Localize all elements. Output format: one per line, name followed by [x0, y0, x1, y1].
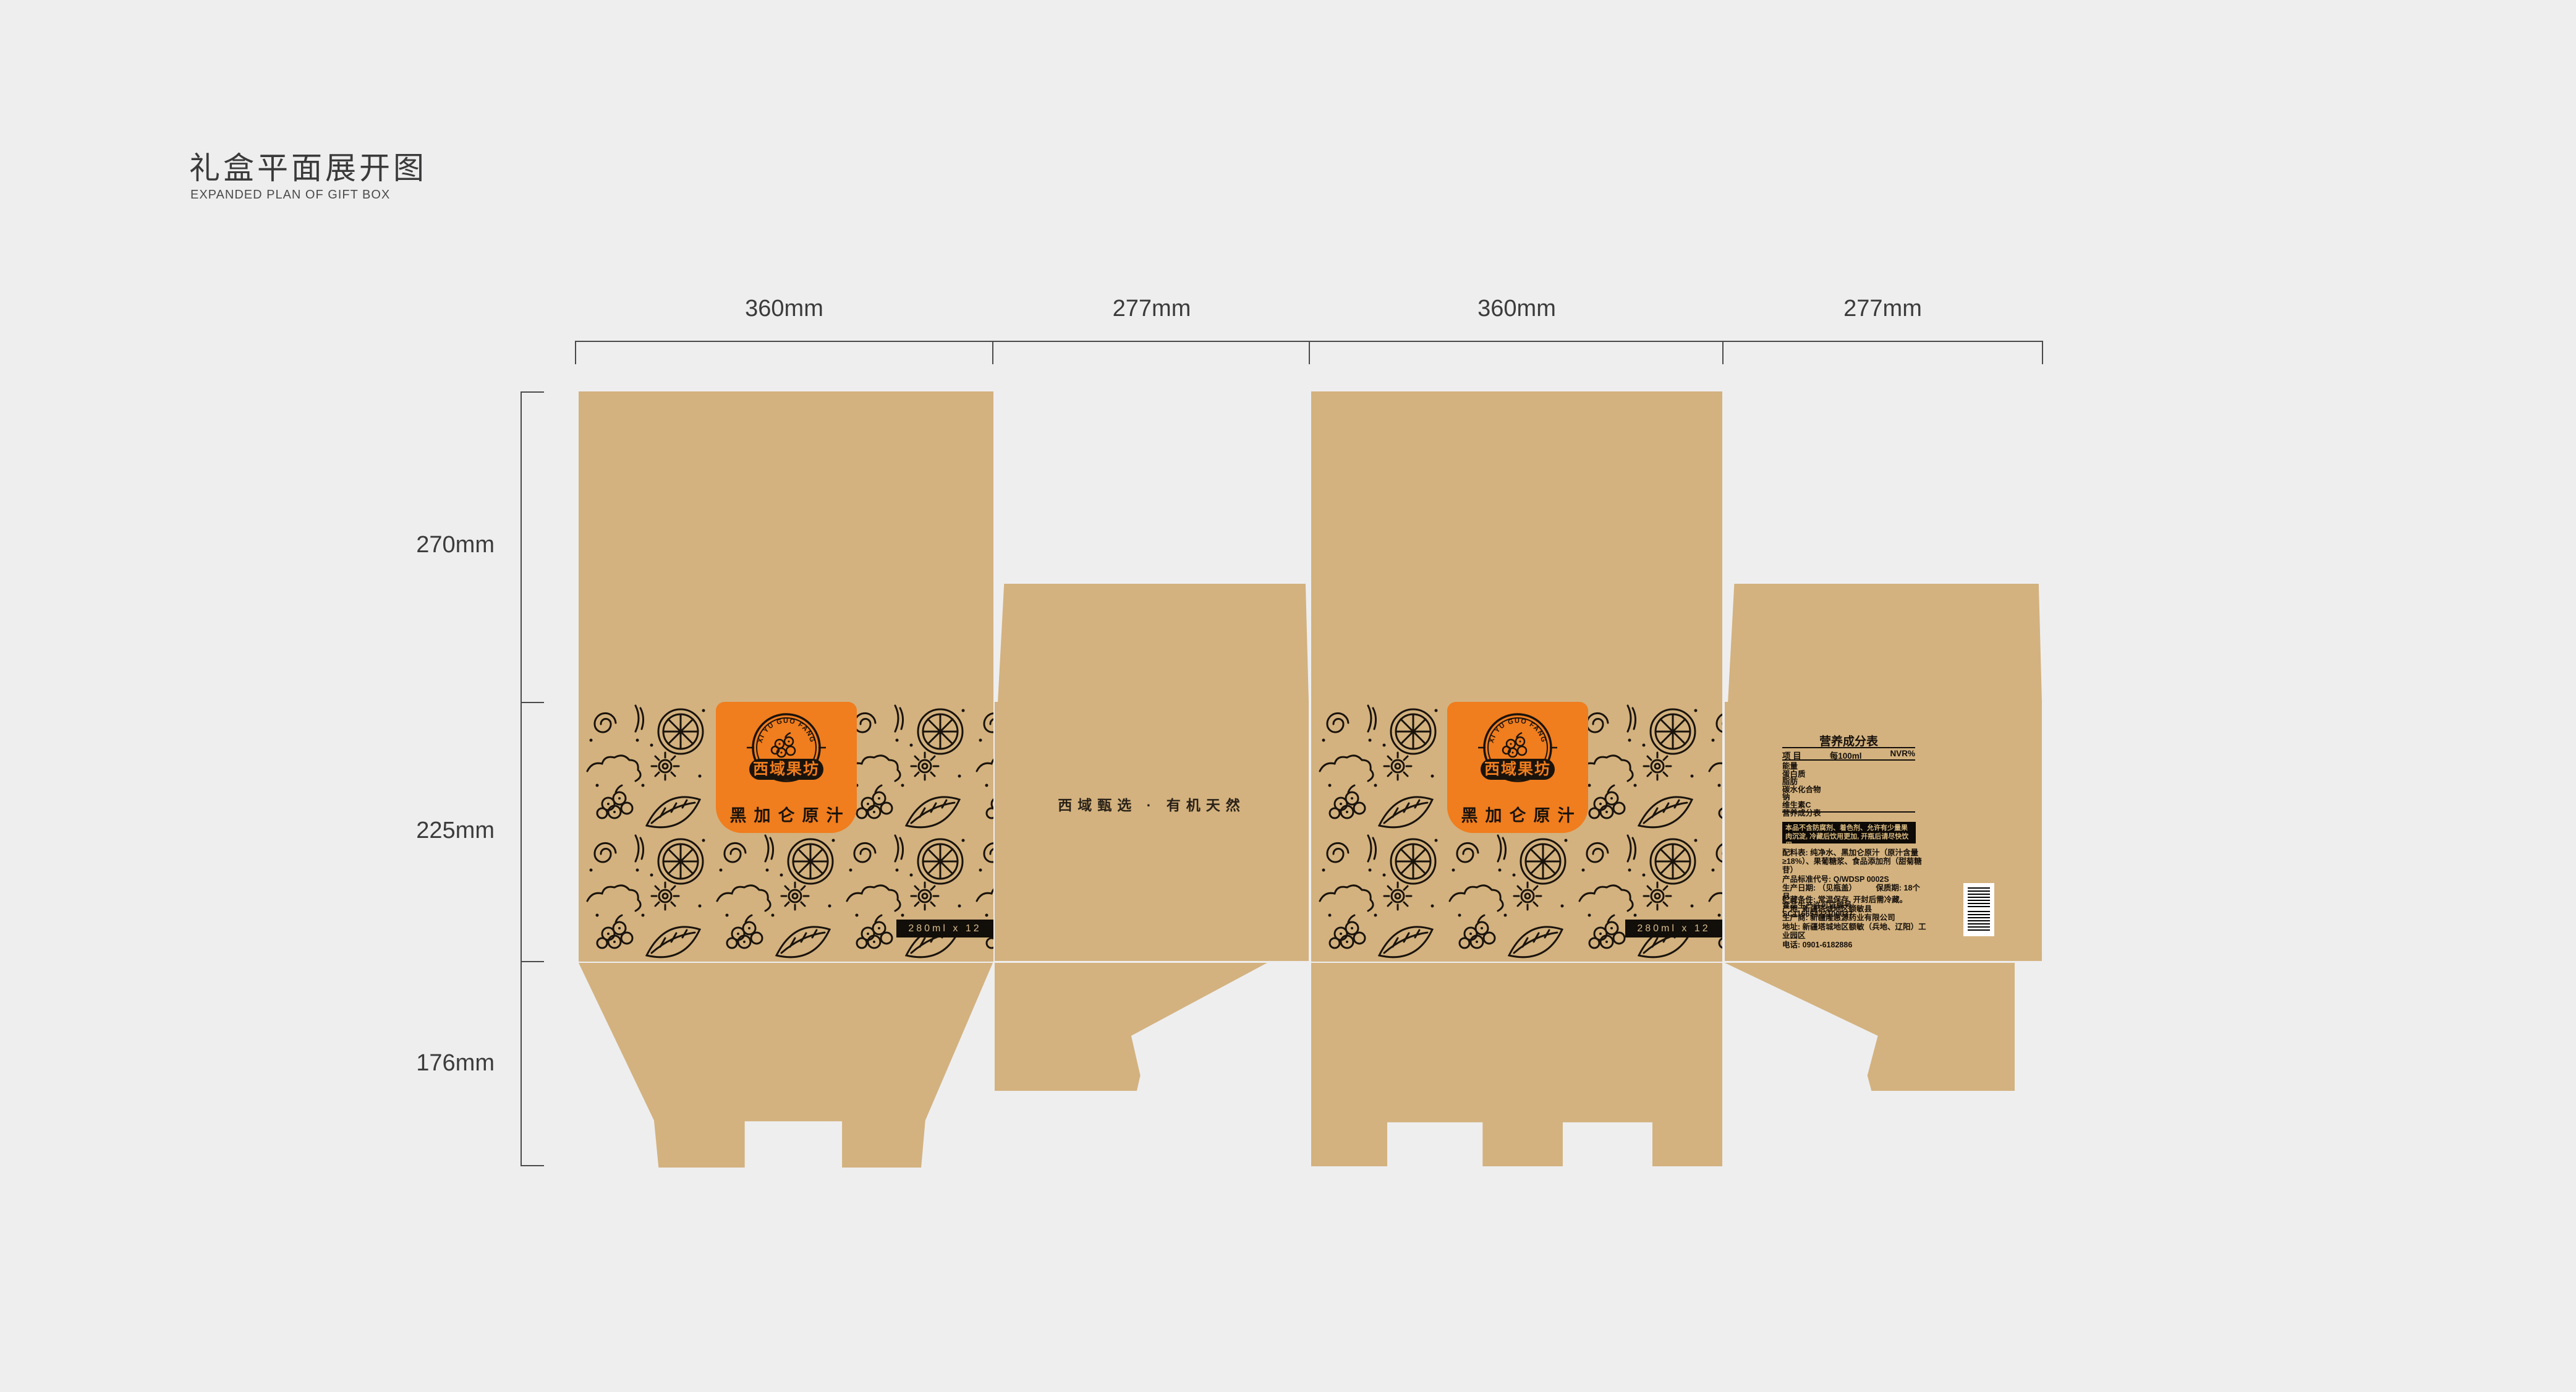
nutrition-rule — [1782, 811, 1915, 813]
detail-line: 配料表: 纯净水、黑加仑原汁（原汁含量≥18%）、果葡糖浆、食品添加剂（甜菊糖苷… — [1782, 848, 1926, 875]
detail-line: 地址: 新疆塔城地区额敏（兵地、辽阳）工业园区 — [1782, 923, 1932, 941]
nutrition-row: 脂肪 — [1782, 778, 1915, 786]
dimension-label-top-4: 277mm — [1724, 296, 2042, 322]
panel2-bottom-flap — [995, 963, 1288, 1091]
left-dimension-tick — [521, 1165, 544, 1166]
brand-logo: XI YU GUO FANG 西域果坊 — [716, 703, 857, 801]
brand-logo: XI YU GUO FANG 西域果坊 — [1447, 703, 1588, 801]
berry-illustration — [772, 733, 795, 757]
panel1-top-face — [579, 391, 993, 702]
dimension-label-left-1: 270mm — [389, 532, 495, 558]
detail-line: 产品标准代号: Q/WDSP 0002S — [1782, 875, 1926, 884]
dimension-label-top-3: 360mm — [1310, 296, 1724, 322]
brand-badge: XI YU GUO FANG 西域果坊 黑加仑原汁 — [1447, 702, 1588, 833]
panel4-bottom-flap — [1725, 963, 2015, 1091]
top-dimension-tick — [992, 341, 993, 364]
nutrition-rule — [1782, 759, 1915, 761]
nutrition-row: 维生素C — [1782, 801, 1915, 809]
pack-spec-bar: 280ml x 12 — [1625, 920, 1722, 937]
left-dimension-tick — [521, 391, 544, 393]
nutrition-title: 营养成分表 — [1782, 732, 1915, 749]
dimension-label-left-3: 176mm — [389, 1050, 495, 1077]
panel3-top-face — [1311, 391, 1722, 702]
manufacturer-details: 贮藏条件: 常温保存, 开封后需冷藏。 产地: 新疆塔城地区额敏县 生产商: 新… — [1782, 895, 1932, 950]
logo-pill-text: 西域果坊 — [753, 760, 820, 778]
panel2-face — [995, 702, 1309, 961]
nutrition-row: 碳水化合物 — [1782, 786, 1915, 794]
top-dimension-tick — [575, 341, 576, 364]
side-slogan: 西域甄选 · 有机天然 — [995, 793, 1309, 814]
nutrition-row: 营养成分表 — [1782, 809, 1915, 818]
left-dimension-tick — [521, 961, 544, 962]
brand-badge: XI YU GUO FANG 西域果坊 黑加仑原汁 — [716, 702, 857, 833]
nutrition-rows: 能量 蛋白质 脂肪 碳水化合物 钠 维生素C 营养成分表 — [1782, 762, 1915, 817]
logo-pill-text: 西域果坊 — [1484, 760, 1551, 778]
panel4-top-flap — [1725, 584, 2042, 702]
pack-spec-bar: 280ml x 12 — [896, 920, 993, 937]
page-subtitle: EXPANDED PLAN OF GIFT BOX — [190, 188, 390, 202]
left-dimension-tick — [521, 702, 544, 703]
nutrition-rule — [1782, 747, 1915, 748]
dimension-label-left-2: 225mm — [389, 818, 495, 844]
dimension-label-top-1: 360mm — [575, 296, 993, 322]
page-title: 礼盒平面展开图 — [189, 143, 427, 188]
product-name: 黑加仑原汁 — [723, 802, 851, 826]
detail-line: 产地: 新疆塔城地区额敏县 — [1782, 905, 1932, 914]
notice-box: 本品不含防腐剂、着色剂、允许有少量果肉沉淀, 冷藏后饮用更加, 开瓶后请尽快饮用… — [1782, 822, 1916, 843]
dimension-label-top-2: 277mm — [993, 296, 1310, 322]
detail-line: 贮藏条件: 常温保存, 开封后需冷藏。 — [1782, 895, 1932, 905]
product-name: 黑加仑原汁 — [1454, 802, 1582, 826]
panel1-bottom-flap — [579, 963, 993, 1168]
top-dimension-tick — [2042, 341, 2043, 364]
panel3-bottom-flap — [1311, 963, 1722, 1166]
artboard: 礼盒平面展开图 EXPANDED PLAN OF GIFT BOX 360mm … — [0, 0, 2576, 1392]
barcode — [1963, 883, 1994, 936]
detail-line: 电话: 0901-6182886 — [1782, 941, 1932, 950]
barcode-bars — [1968, 887, 1990, 908]
nutrition-row: 蛋白质 — [1782, 771, 1915, 779]
barcode-bars — [1968, 911, 1990, 932]
top-dimension-tick — [1309, 341, 1310, 364]
top-dimension-tick — [1722, 341, 1724, 364]
left-dimension-line — [521, 391, 522, 1166]
panel2-top-flap — [995, 584, 1309, 702]
berry-illustration — [1503, 733, 1526, 757]
detail-line: 生产商: 新疆隆惠源药业有限公司 — [1782, 913, 1932, 923]
nutrition-row: 能量 — [1782, 762, 1915, 771]
